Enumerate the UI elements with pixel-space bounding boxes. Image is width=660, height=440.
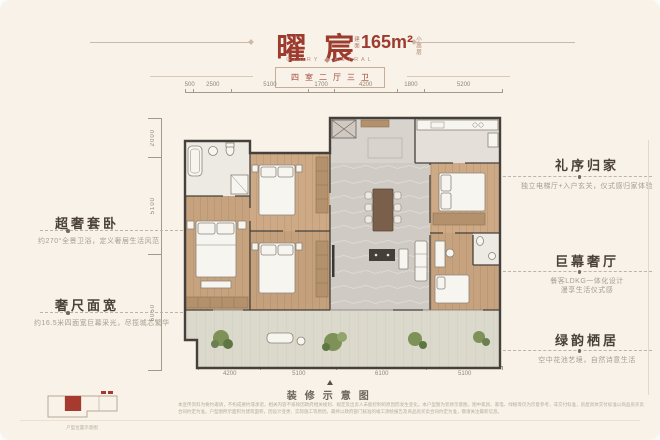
dim-label: 1800 [404,82,417,88]
callout-desc-entry: 独立电梯厅+入户玄关，仪式感归家体验 [520,181,654,191]
title-divider-right [412,42,575,43]
callout-desc-balcony: 空中花池艺境，自然诗意生活 [520,355,654,365]
callout-desc-wide-frontage: 约16.5米四面宽巨幕采光，尽揽城芯繁华 [34,318,170,328]
brand-left: GLORY [286,57,320,63]
brand-right: ASTRAL [334,57,373,63]
dim-label: 2500 [206,82,219,88]
layout-box-line-left [150,76,253,77]
dim-label: 5100 [263,82,276,88]
diamond-icon [325,57,331,63]
callout-desc-living-2: 漫享生活仪式感 [520,285,654,295]
area-suffix: 小高层 [414,36,422,56]
plan-caption: 装修示意图 [287,387,377,402]
callout-desc-master-suite: 约270°全景卫浴，定义奢居生活风范 [38,236,159,246]
callout-leader-line [40,230,183,231]
title-divider-left [90,42,253,43]
callout-title-entry: 礼序归家 [520,155,654,174]
dim-label: 5100 [150,197,156,214]
dimension-row-top: 500 2500 5100 1700 4200 1800 5200 [185,89,503,93]
callout-leader-line [503,350,652,351]
area-value: 165m² [361,33,413,51]
brand-subtitle: GLORY ASTRAL [286,57,374,63]
callout-leader-line [503,271,652,272]
dim-label: 2000 [150,129,156,146]
floor-plan [183,113,503,375]
callout-title-living: 巨幕奢厅 [520,251,654,270]
inset-caption: 户型位置示意图 [42,425,122,431]
dim-label: 1700 [314,82,327,88]
dim-label: 500 [185,82,195,88]
dim-label: 5200 [457,82,470,88]
callout-leader-line [40,312,183,313]
disclaimer-text: 本宣传资料为要约邀请，不构成要约或承诺，相关内容不排除因政府相关规划、规定及出卖… [178,402,644,416]
callout-leader-line [503,176,652,177]
area-label: 建面 [352,36,360,49]
building-locator-inset [45,386,120,424]
right-rule [648,140,649,395]
layout-box-line-right [407,76,510,77]
area-info: 建面 165m² 小高层 [352,33,422,56]
flyer-card: 曜宸 建面 165m² 小高层 GLORY ASTRAL 四室二厅三卫 500 … [0,0,660,440]
callout-title-balcony: 绿韵栖居 [520,330,654,349]
bottom-rule [20,420,640,421]
north-arrow-icon [327,380,333,385]
dim-label: 4200 [359,82,372,88]
